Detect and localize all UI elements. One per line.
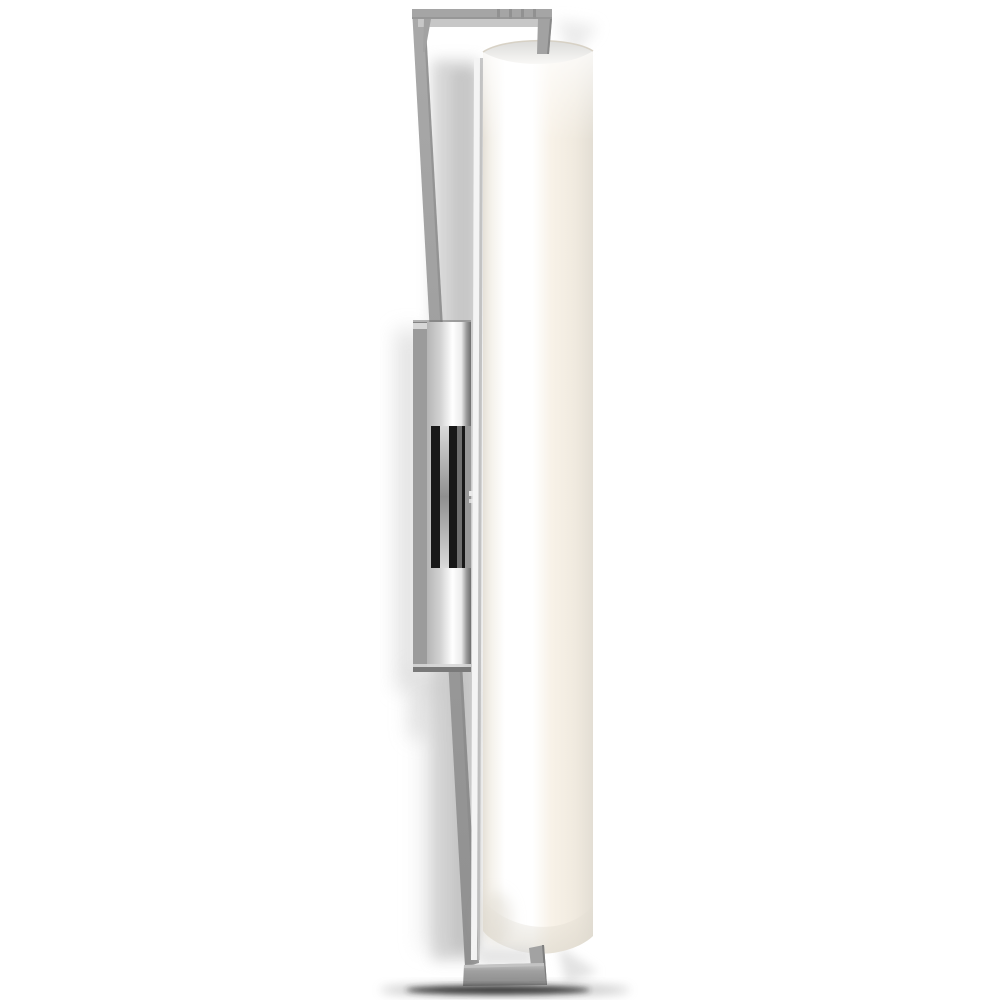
backplate-bottom-cap — [413, 664, 471, 667]
shadow-under-glass — [480, 948, 534, 966]
top-bar-front-edge — [412, 17, 552, 19]
connector-chrome-stripe — [440, 426, 449, 568]
backplate-bottom-edge — [413, 667, 471, 672]
product-image — [0, 0, 1000, 1000]
top-bar-inner-lip — [418, 19, 546, 27]
wall-sconce-photo — [0, 0, 1000, 1000]
set-screw-top — [469, 491, 473, 496]
glass-diffuser-tube — [483, 41, 593, 954]
glass-bottom-left-shade — [480, 892, 512, 948]
backplate-left-side-face — [413, 322, 428, 672]
set-screw-bottom — [469, 499, 473, 503]
connector-gray-stripe — [457, 426, 462, 568]
connector-side-face — [465, 426, 471, 568]
contact-shadow-dark — [406, 986, 590, 995]
